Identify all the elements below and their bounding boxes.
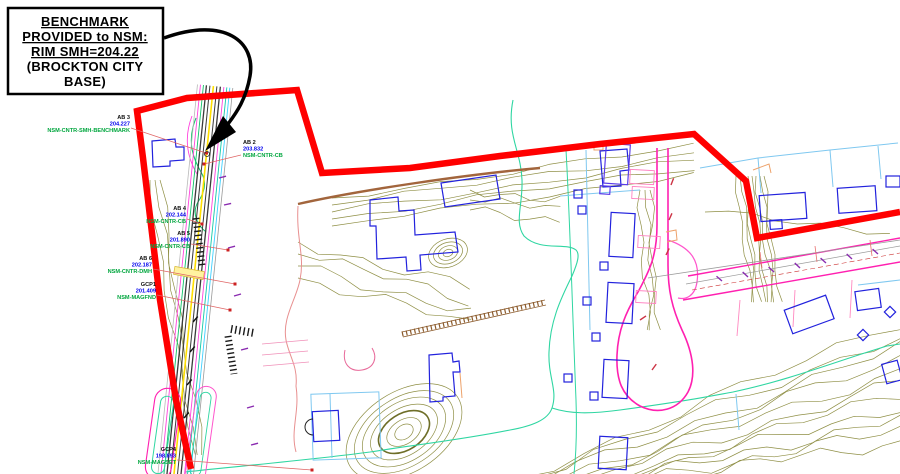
building-outline (598, 436, 628, 469)
point-marker (229, 309, 232, 312)
callout-text-line: BENCHMARK (41, 14, 129, 29)
point-marker (201, 223, 204, 226)
symbol-diamond (884, 306, 895, 317)
building-outline (429, 353, 460, 402)
spot-elevation-tick (241, 347, 248, 352)
contour-line (649, 190, 661, 330)
wetland-lines-layer (185, 100, 900, 474)
survey-point-label: GCP4 198.893 NSM-MAGSET (138, 447, 177, 466)
building-outline (370, 197, 458, 271)
building-outline (152, 139, 184, 167)
building-outline (784, 295, 834, 334)
contour-line (332, 153, 694, 205)
point-id: AB 6 (139, 256, 152, 262)
survey-point-label: AB 5 201.890 NSM-CNTR-CB (150, 231, 190, 250)
symbol-diamond (857, 329, 868, 340)
site-plan-canvas: AB 3 204.227 NSM-CNTR-SMH-BENCHMARK AB 2… (0, 0, 900, 474)
cad-map-viewport: AB 3 204.227 NSM-CNTR-SMH-BENCHMARK AB 2… (0, 0, 900, 474)
building-outline (855, 288, 881, 310)
contour-line (470, 207, 560, 222)
point-code: NSM-CNTR-DMH (108, 269, 152, 275)
contour-line (332, 171, 695, 219)
point-id: AB 4 (173, 206, 187, 212)
point-code: NSM-CNTR-CB (243, 153, 283, 159)
property-line (878, 146, 881, 179)
spot-elevation-tick (652, 363, 656, 370)
orange-line (460, 373, 462, 398)
property-line (830, 150, 833, 187)
pink-line (263, 362, 309, 366)
point-id: AB 5 (177, 231, 190, 237)
pink-line (262, 351, 308, 355)
building-outline (886, 176, 900, 187)
lot-line (815, 246, 817, 262)
survey-point-labels: AB 3 204.227 NSM-CNTR-SMH-BENCHMARK AB 2… (47, 115, 282, 466)
point-elevation: 201.890 (170, 238, 190, 244)
road-line (168, 86, 210, 474)
wetland-line (566, 150, 576, 474)
leader-line (157, 295, 230, 310)
callout-text-line: PROVIDED to NSM: (22, 29, 147, 44)
survey-point-markers (201, 152, 314, 472)
shed-outline (578, 206, 586, 214)
pink-line (344, 348, 374, 370)
point-code: NSM-MAGFND (117, 295, 156, 301)
road-corridor (156, 84, 233, 474)
contour-ring (382, 412, 427, 453)
hatched-wall-line (402, 302, 545, 334)
lot-line (850, 280, 852, 318)
lot-line (793, 290, 795, 327)
point-elevation: 203.832 (243, 147, 263, 153)
street-utility (692, 253, 900, 290)
spot-elevation-tick (224, 202, 231, 207)
shed-outline (590, 392, 598, 400)
callout-text-line: (BROCKTON CITY (27, 59, 144, 74)
contour-line (470, 190, 560, 202)
contour-line (470, 198, 560, 208)
spot-elevation-tick (671, 178, 674, 185)
crosswalk (228, 336, 234, 374)
spot-elevation-tick (669, 213, 672, 220)
spot-elevation-tick (247, 404, 254, 409)
property-line (330, 394, 332, 458)
point-elevation: 204.227 (110, 122, 130, 128)
point-code: NSM-CNTR-CB (146, 219, 186, 225)
building-outline (837, 186, 877, 214)
point-id: GCP4 (161, 447, 177, 453)
lot-line (737, 300, 740, 336)
pink-line (262, 340, 308, 344)
property-lines-layer (311, 143, 900, 460)
contour-line (637, 190, 650, 330)
survey-point-label: AB 3 204.227 NSM-CNTR-SMH-BENCHMARK (47, 115, 130, 134)
point-id: AB 2 (243, 140, 256, 146)
point-marker (311, 469, 314, 472)
lot-line (648, 240, 900, 278)
property-line (758, 158, 761, 193)
point-elevation: 198.893 (156, 454, 176, 460)
contour-line (298, 242, 470, 289)
point-marker (234, 283, 237, 286)
contour-line (646, 426, 900, 474)
hatched-wall-rail (403, 305, 546, 337)
contour-line (298, 266, 471, 311)
contour-line (618, 412, 900, 474)
contour-line (534, 337, 900, 474)
point-marker (227, 249, 230, 252)
point-code: NSM-MAGSET (138, 460, 177, 466)
brown-lines-layer (298, 168, 546, 337)
callout-text-line: BASE) (64, 74, 106, 89)
building-outline (606, 282, 634, 323)
spot-elevation-ticks (184, 175, 879, 447)
contour-ring (392, 421, 416, 444)
point-code: NSM-CNTR-SMH-BENCHMARK (47, 128, 130, 134)
survey-point-label: AB 6 202.187 NSM-CNTR-DMH (108, 256, 152, 275)
survey-point-label: AB 2 203.832 NSM-CNTR-CB (243, 140, 283, 159)
point-marker (203, 163, 206, 166)
shed-outline (564, 374, 572, 382)
point-elevation: 201.409 (136, 289, 156, 295)
contour-line (298, 254, 468, 306)
street-edge (688, 238, 900, 276)
contour-line (298, 278, 471, 319)
point-elevation: 202.187 (132, 263, 152, 269)
shed-outline (600, 262, 608, 270)
property-line (736, 394, 739, 430)
hatched-wall-rail (402, 300, 545, 332)
crosswalk (231, 329, 254, 333)
wetland-line (552, 344, 900, 413)
callout-text-line: RIM SMH=204.22 (31, 44, 139, 59)
point-id: AB 3 (117, 115, 130, 121)
spot-elevation-tick (219, 175, 226, 180)
point-elevation: 202.144 (166, 213, 187, 219)
point-id: GCP1 (141, 282, 156, 288)
building-outline (759, 192, 807, 221)
spot-elevation-tick (251, 442, 258, 447)
spot-elevation-tick (640, 315, 646, 322)
property-line (858, 280, 900, 285)
contour-ring (350, 383, 459, 474)
contour-line (548, 341, 900, 474)
building-outline (312, 410, 340, 441)
survey-point-label: GCP1 201.409 NSM-MAGFND (117, 282, 156, 301)
shed-outline (592, 333, 600, 341)
spot-elevation-tick (234, 292, 241, 297)
orange-line (753, 164, 771, 173)
building-outline (609, 212, 635, 257)
point-code: NSM-CNTR-CB (150, 244, 190, 250)
